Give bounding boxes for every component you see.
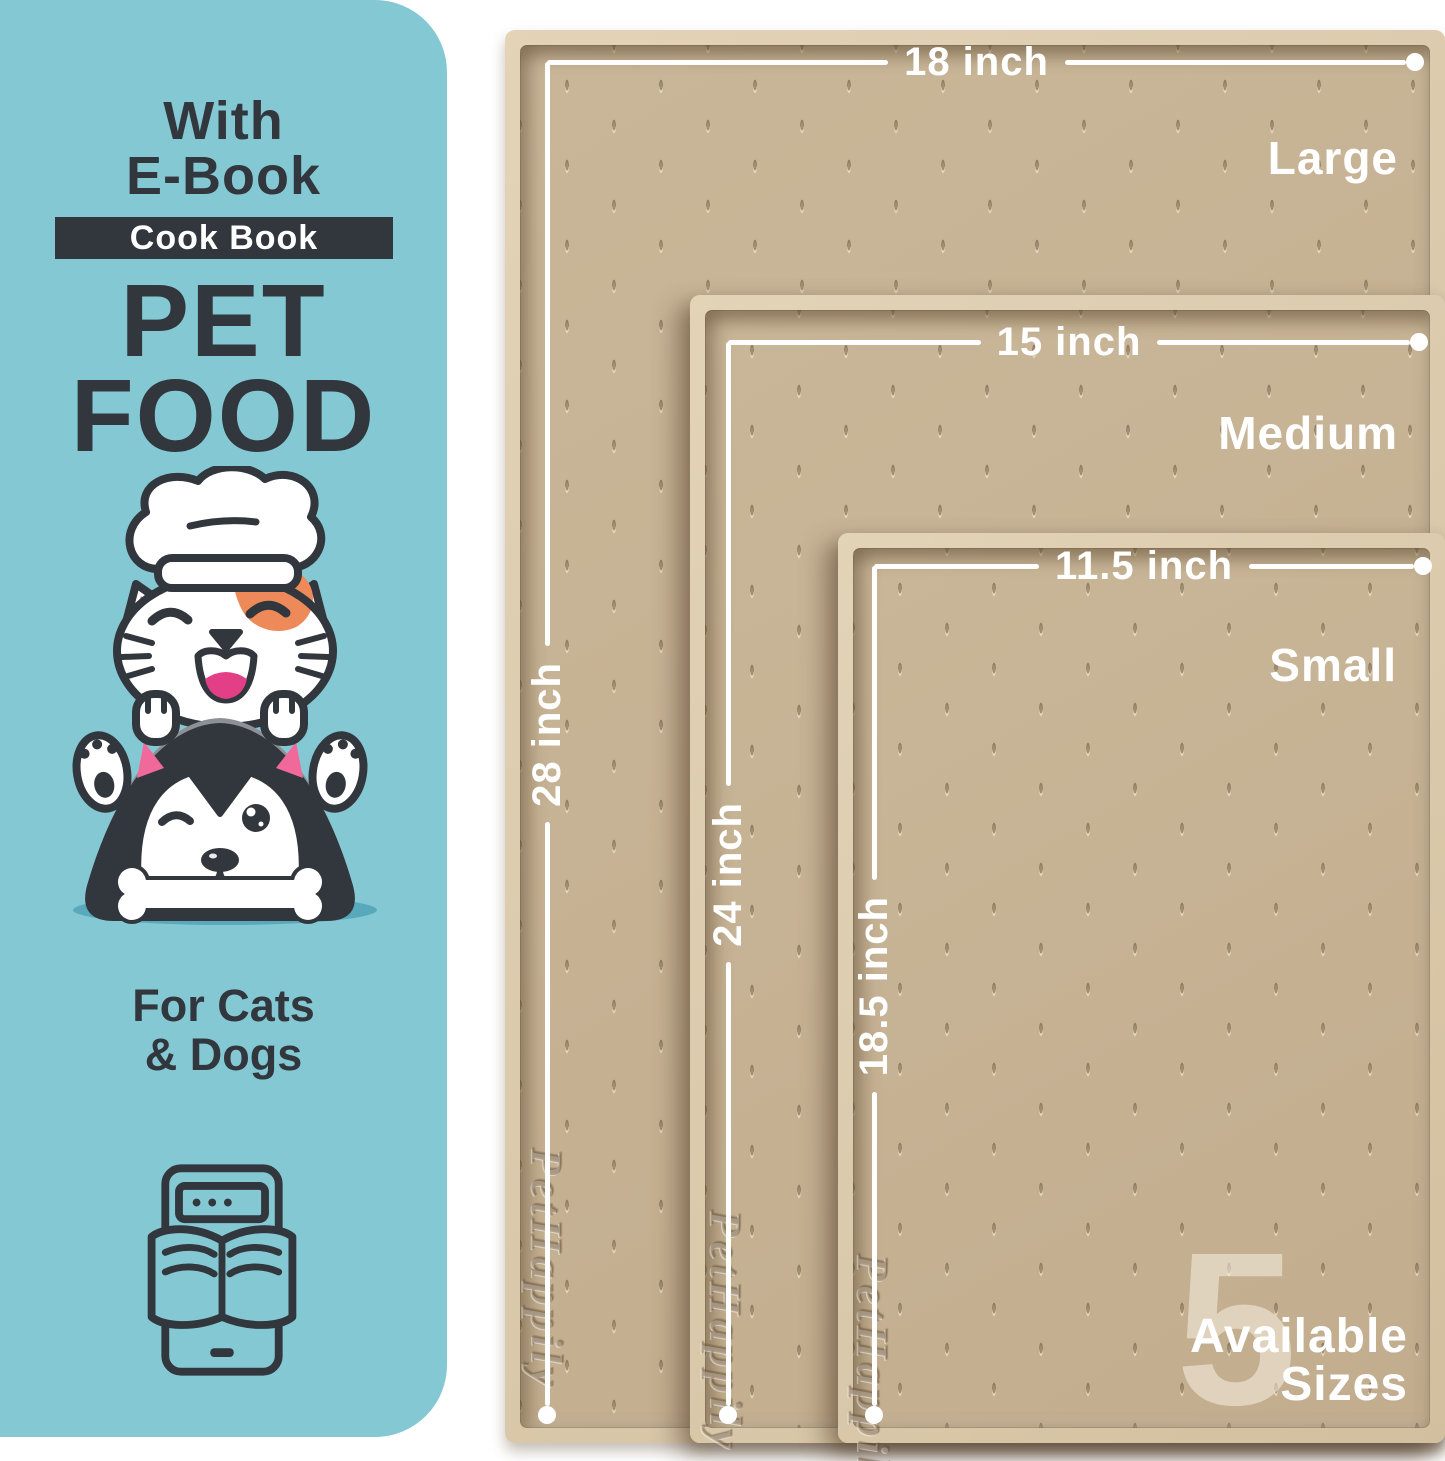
dimension-line bbox=[1065, 60, 1406, 65]
ebook-heading-line2: E-Book bbox=[126, 146, 321, 206]
cat-dog-chef-illustration bbox=[40, 466, 402, 934]
height-value-medium: 24 inch bbox=[706, 802, 751, 947]
dimension-line bbox=[547, 60, 888, 65]
pet-food-title-line2: FOOD bbox=[71, 358, 377, 473]
width-value-large: 18 inch bbox=[904, 40, 1049, 85]
size-label-small: Small bbox=[1269, 638, 1397, 692]
dimension-line bbox=[872, 566, 877, 880]
cookbook-badge: Cook Book bbox=[55, 217, 393, 259]
dimension-endpoint-dot bbox=[538, 1406, 556, 1424]
dimension-endpoint-dot bbox=[1410, 333, 1428, 351]
dimension-endpoint-dot bbox=[1414, 557, 1432, 575]
dimension-line bbox=[726, 342, 731, 786]
height-dimension-medium: 24 inch bbox=[710, 342, 746, 1424]
audience-text: For Cats & Dogs bbox=[0, 982, 447, 1079]
cookbook-badge-label: Cook Book bbox=[130, 219, 318, 258]
dimension-line bbox=[545, 822, 550, 1406]
height-value-large: 28 inch bbox=[525, 662, 570, 807]
dimension-line bbox=[726, 962, 731, 1406]
cat-icon bbox=[117, 467, 333, 727]
width-dimension-small: 11.5 inch bbox=[874, 548, 1432, 584]
height-value-small: 18.5 inch bbox=[852, 896, 897, 1076]
dimension-endpoint-dot bbox=[719, 1406, 737, 1424]
audience-line2: & Dogs bbox=[145, 1029, 303, 1080]
ebook-icon bbox=[134, 1162, 310, 1378]
height-dimension-small: 18.5 inch bbox=[856, 566, 892, 1424]
height-dimension-large: 28 inch bbox=[529, 62, 565, 1424]
size-label-large: Large bbox=[1268, 131, 1398, 185]
width-dimension-medium: 15 inch bbox=[728, 324, 1428, 360]
dog-icon bbox=[71, 694, 369, 920]
dimension-endpoint-dot bbox=[865, 1406, 883, 1424]
dimension-line bbox=[545, 62, 550, 646]
left-panel: With E-Book Cook Book PET FOOD bbox=[0, 0, 447, 1437]
width-dimension-large: 18 inch bbox=[547, 44, 1424, 80]
available-sizes-line1: Available bbox=[1190, 1310, 1408, 1363]
audience-line1: For Cats bbox=[132, 980, 315, 1031]
ebook-heading-line1: With bbox=[163, 91, 283, 151]
width-value-small: 11.5 inch bbox=[1055, 544, 1233, 589]
width-value-medium: 15 inch bbox=[997, 320, 1142, 365]
dimension-endpoint-dot bbox=[1406, 53, 1424, 71]
dimension-line bbox=[1249, 564, 1414, 569]
dimension-line bbox=[728, 340, 981, 345]
dimension-line bbox=[872, 1092, 877, 1406]
available-sizes-label: Available Sizes bbox=[1190, 1313, 1408, 1409]
dimension-line bbox=[1157, 340, 1410, 345]
size-label-medium: Medium bbox=[1218, 406, 1398, 460]
dimension-line bbox=[874, 564, 1039, 569]
product-image: With E-Book Cook Book PET FOOD bbox=[0, 0, 1445, 1461]
available-sizes-line2: Sizes bbox=[1280, 1358, 1408, 1411]
pet-food-title: PET FOOD bbox=[0, 274, 447, 464]
ebook-heading: With E-Book bbox=[0, 94, 447, 204]
